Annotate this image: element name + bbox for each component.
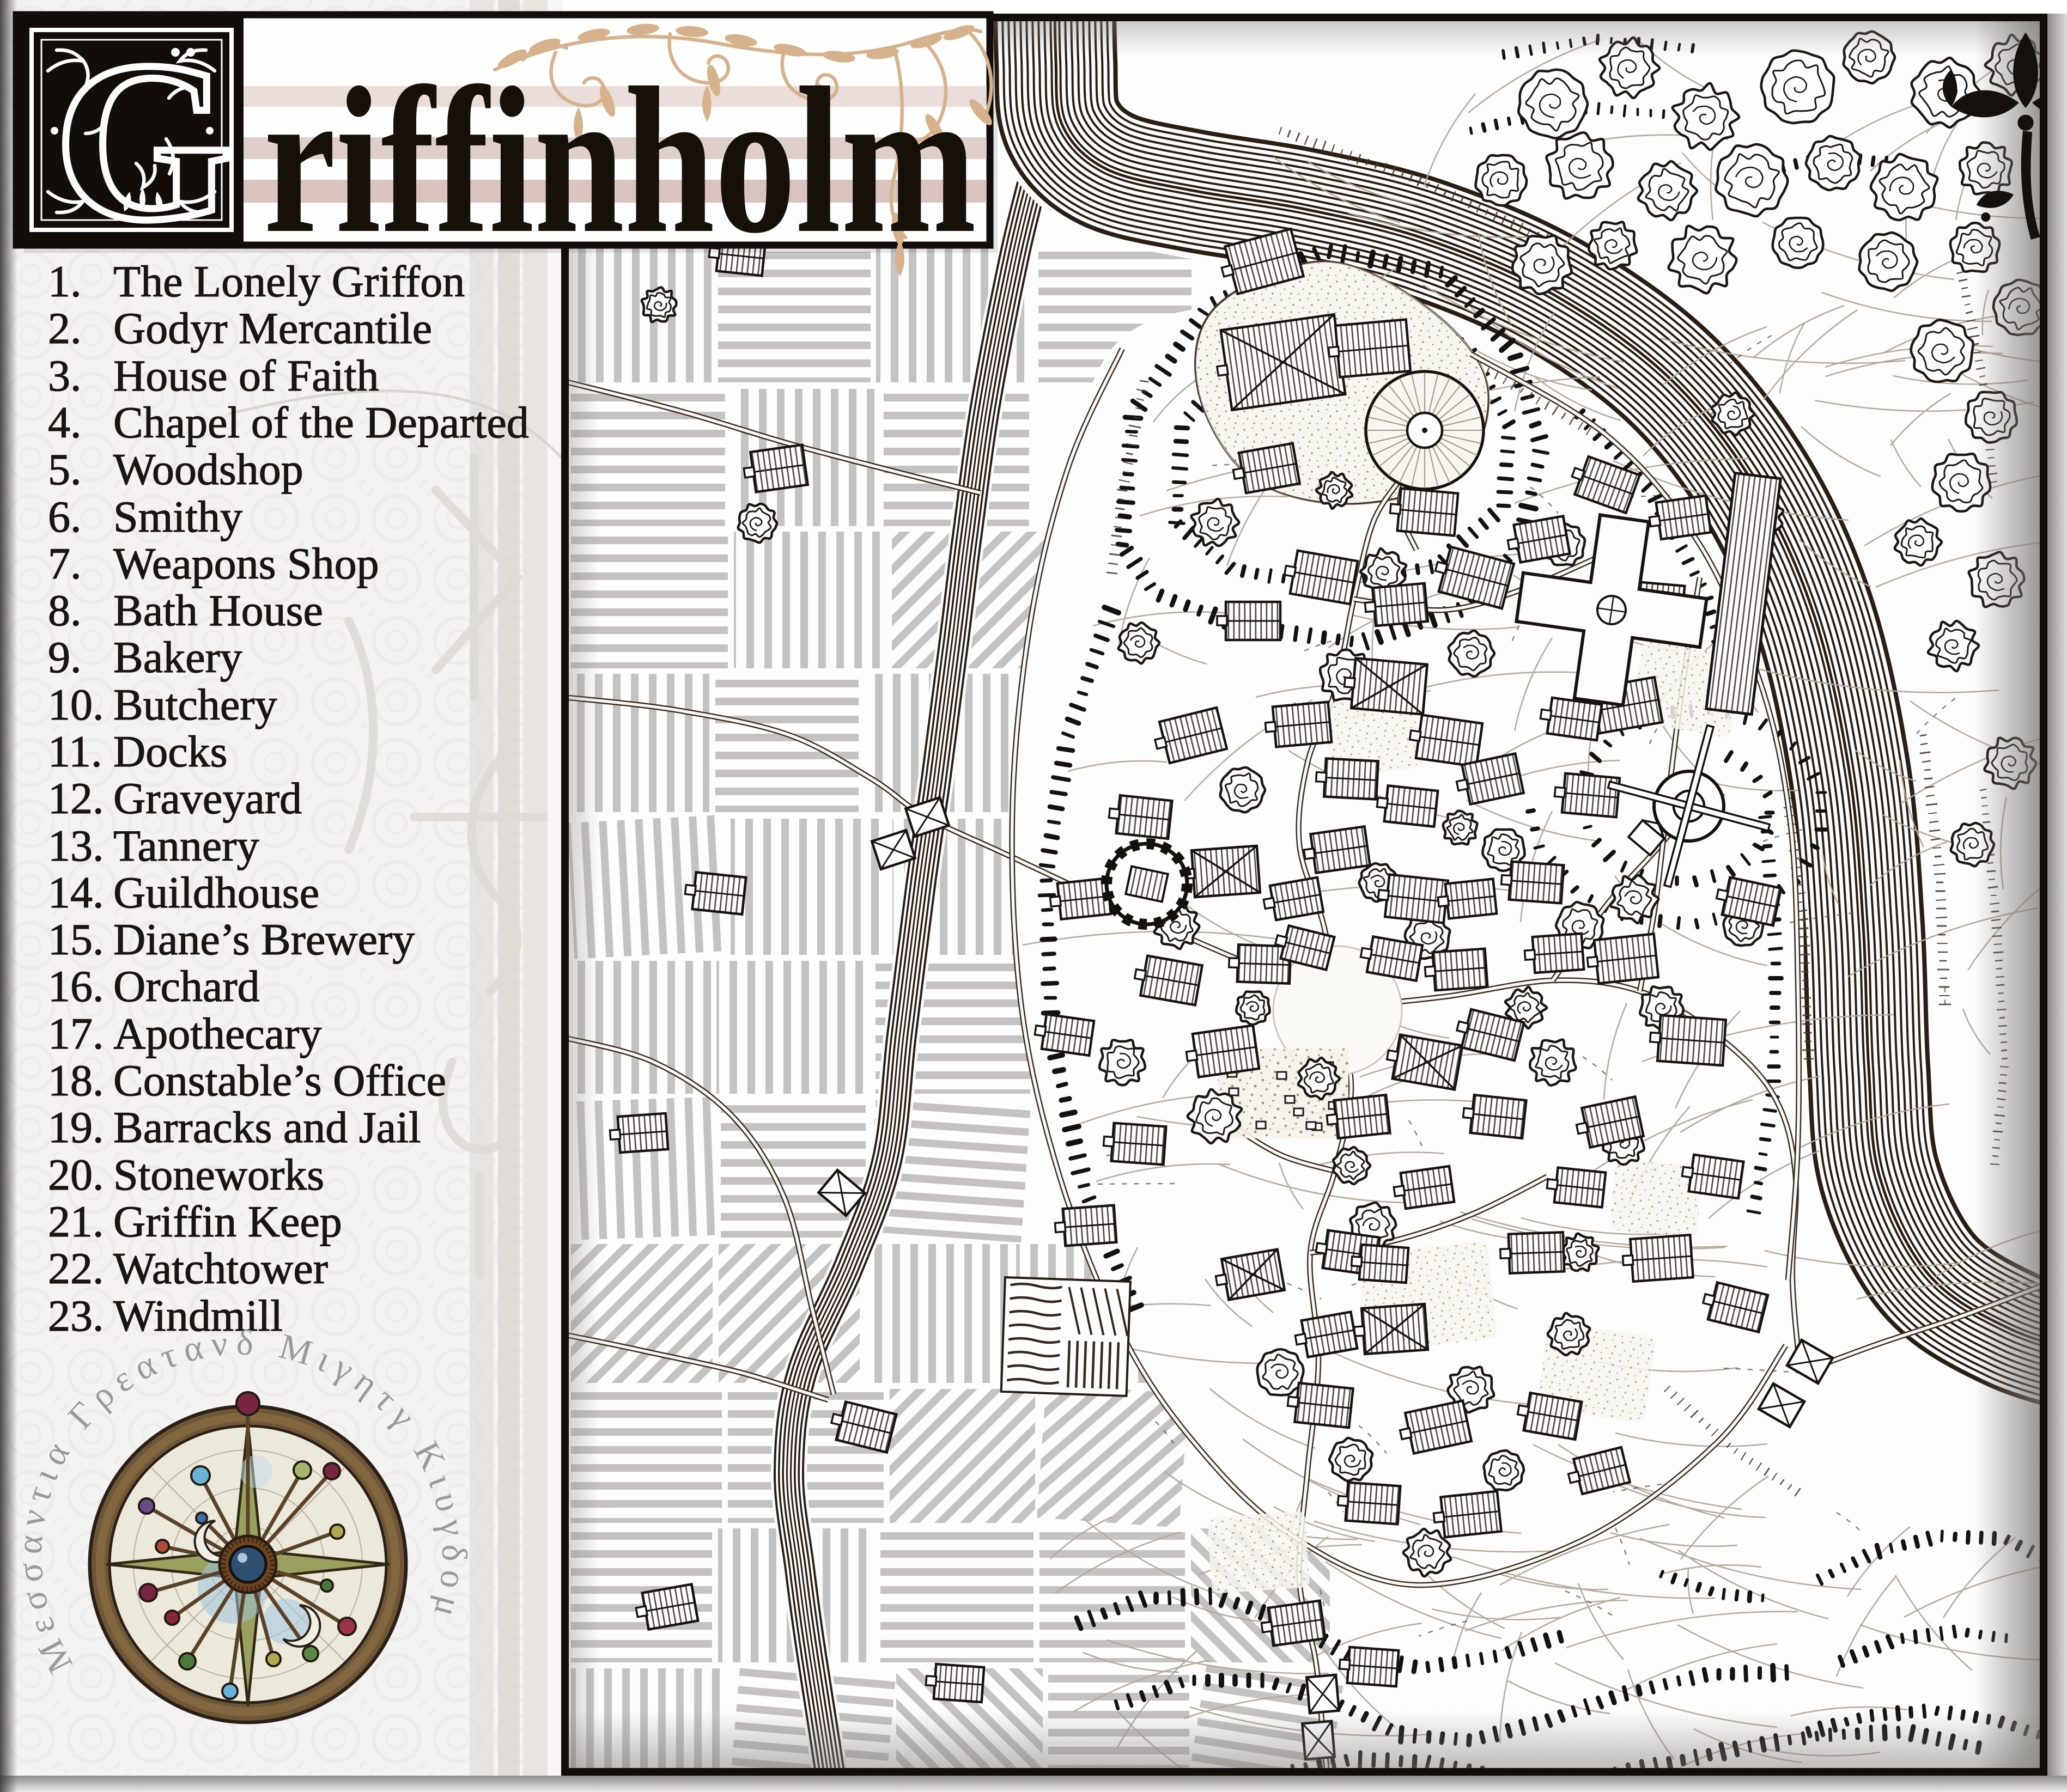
svg-text:2.: 2. [48,303,82,353]
svg-text:8.: 8. [48,586,82,635]
svg-text:9.: 9. [48,632,82,682]
svg-text:Stoneworks: Stoneworks [113,1150,324,1199]
svg-text:Smithy: Smithy [113,492,242,541]
svg-text:Watchtower: Watchtower [113,1244,328,1293]
svg-text:12.: 12. [48,773,104,823]
svg-text:Guildhouse: Guildhouse [113,868,319,917]
svg-text:3.: 3. [48,351,82,400]
svg-text:13.: 13. [48,821,104,870]
svg-text:7.: 7. [48,539,82,588]
svg-text:Tannery: Tannery [113,821,259,870]
svg-text:14.: 14. [48,868,104,917]
svg-text:Woodshop: Woodshop [113,444,303,494]
svg-text:Diane’s Brewery: Diane’s Brewery [113,915,415,964]
svg-text:22.: 22. [48,1244,104,1293]
svg-text:5.: 5. [48,444,82,494]
svg-text:Barracks and Jail: Barracks and Jail [113,1102,421,1152]
svg-text:Apothecary: Apothecary [113,1009,322,1058]
svg-text:riffinholm: riffinholm [264,45,976,277]
svg-text:17.: 17. [48,1009,104,1058]
svg-text:Graveyard: Graveyard [113,773,302,823]
svg-text:Chapel of the Departed: Chapel of the Departed [113,398,529,447]
svg-text:Godyr Mercantile: Godyr Mercantile [113,303,432,353]
svg-text:G: G [54,14,233,267]
svg-text:Bath House: Bath House [113,586,323,635]
svg-text:11.: 11. [48,727,102,776]
svg-text:1.: 1. [48,257,82,306]
svg-text:Butchery: Butchery [113,680,277,729]
svg-text:4.: 4. [48,398,82,447]
svg-text:House of Faith: House of Faith [113,351,379,400]
svg-text:Orchard: Orchard [113,961,260,1011]
svg-text:16.: 16. [48,961,104,1011]
svg-text:19.: 19. [48,1102,104,1152]
svg-text:Constable’s Office: Constable’s Office [113,1056,446,1105]
svg-text:Weapons Shop: Weapons Shop [113,539,379,588]
svg-text:The Lonely Griffon: The Lonely Griffon [113,257,465,306]
svg-text:Docks: Docks [113,727,228,776]
svg-text:21.: 21. [48,1197,104,1246]
svg-text:Griffin Keep: Griffin Keep [113,1197,342,1246]
svg-text:20.: 20. [48,1150,104,1199]
svg-text:15.: 15. [48,915,104,964]
svg-text:18.: 18. [48,1056,104,1105]
svg-text:10.: 10. [48,680,104,729]
svg-text:Bakery: Bakery [113,632,242,682]
svg-text:23.: 23. [48,1291,104,1340]
svg-text:6.: 6. [48,492,82,541]
